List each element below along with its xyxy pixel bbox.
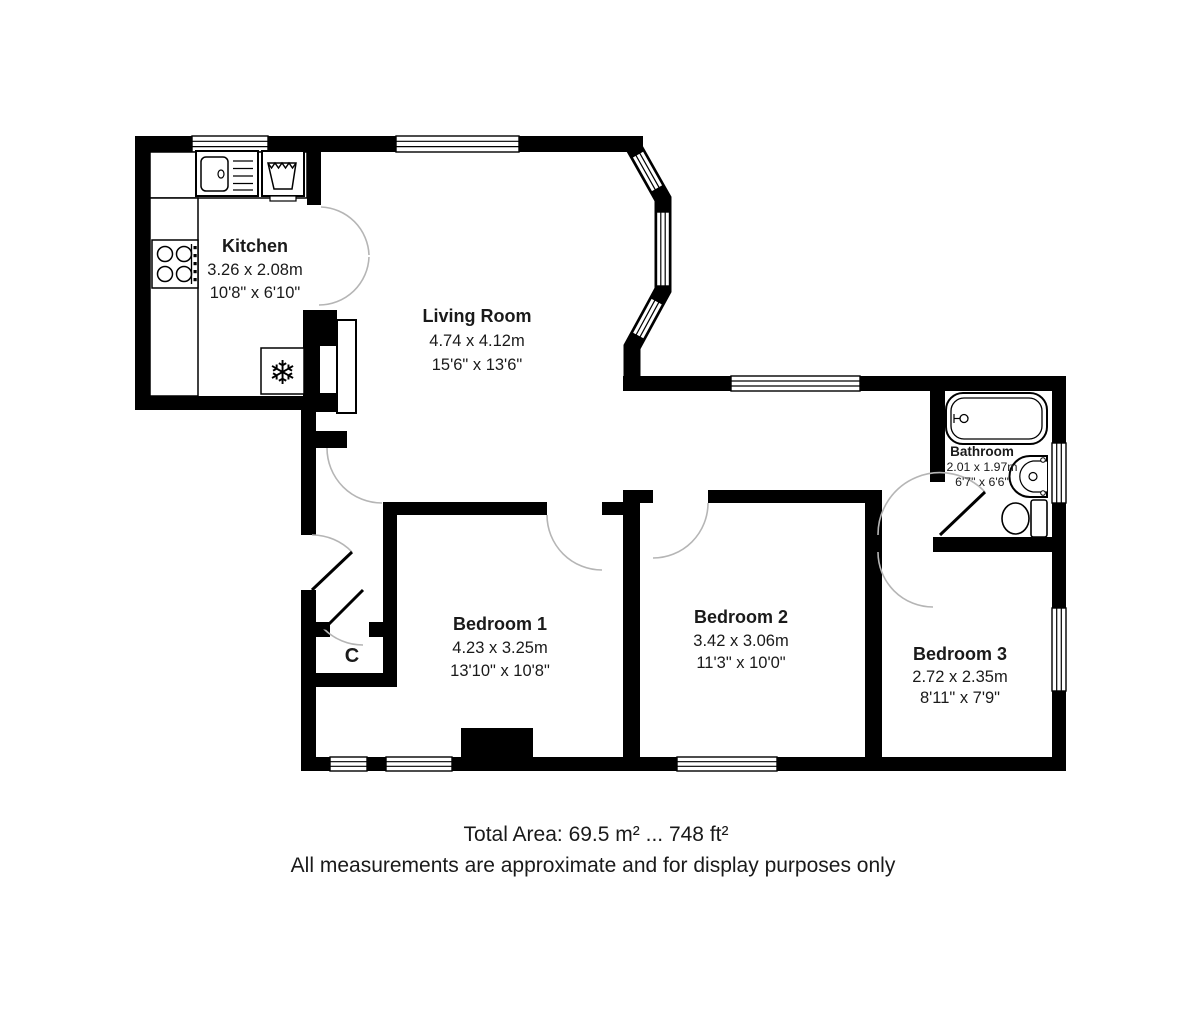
toilet-icon — [1002, 500, 1047, 537]
bedroom3-door-arc — [878, 552, 933, 607]
room-dims-imperial: 6'7" x 6'6" — [955, 475, 1009, 489]
room-name: Bedroom 1 — [453, 614, 547, 634]
closet-door-leaf — [324, 590, 363, 629]
room-bedroom-2: Bedroom 2 3.42 x 3.06m 11'3" x 10'0" — [693, 607, 788, 672]
bay-window-pane — [657, 212, 670, 286]
bedroom2-door-arc — [653, 503, 708, 558]
floorplan-drawing: ❄ Kitchen 3.26 x 2.08m 10'8" x 6'10" Li — [0, 0, 1200, 1020]
snowflake-icon: ❄ — [269, 353, 297, 392]
room-name: Bathroom — [950, 444, 1014, 459]
window — [396, 136, 519, 152]
bathtub-icon — [946, 393, 1047, 444]
room-kitchen: Kitchen 3.26 x 2.08m 10'8" x 6'10" — [207, 236, 302, 302]
window — [731, 376, 860, 391]
room-dims-imperial: 10'8" x 6'10" — [210, 284, 301, 302]
bathroom-door-leaf — [940, 492, 985, 535]
washing-machine-icon — [262, 151, 304, 201]
room-dims-metric: 4.74 x 4.12m — [429, 332, 524, 350]
bedroom1-door-arc — [547, 515, 602, 570]
room-dims-metric: 3.26 x 2.08m — [207, 261, 302, 279]
room-bedroom-3: Bedroom 3 2.72 x 2.35m 8'11" x 7'9" — [912, 644, 1007, 707]
window — [192, 136, 268, 152]
window — [386, 757, 452, 771]
room-dims-imperial: 8'11" x 7'9" — [920, 689, 1000, 707]
entrance-door-arc — [312, 535, 352, 552]
room-dims-imperial: 13'10" x 10'8" — [450, 662, 550, 680]
hob-icon — [152, 240, 198, 288]
kitchen-door-arc — [319, 257, 369, 305]
room-dims-metric: 2.01 x 1.97m — [946, 460, 1017, 474]
room-name: Bedroom 3 — [913, 644, 1007, 664]
footer: Total Area: 69.5 m² ... 748 ft² All meas… — [291, 823, 896, 877]
total-area-text: Total Area: 69.5 m² ... 748 ft² — [464, 823, 729, 846]
kitchen-counter — [150, 198, 198, 396]
room-closet: C — [345, 645, 359, 667]
room-living-room: Living Room 4.74 x 4.12m 15'6" x 13'6" — [423, 306, 532, 374]
floorplan-page: ❄ Kitchen 3.26 x 2.08m 10'8" x 6'10" Li — [0, 0, 1200, 1020]
bay-window-pane — [632, 298, 663, 339]
fireplace-hearth — [337, 320, 356, 413]
room-name: Kitchen — [222, 236, 288, 256]
room-dims-metric: 2.72 x 2.35m — [912, 668, 1007, 686]
room-name: Living Room — [423, 306, 532, 326]
room-bathroom: Bathroom 2.01 x 1.97m 6'7" x 6'6" — [946, 444, 1017, 489]
room-bedroom-1: Bedroom 1 4.23 x 3.25m 13'10" x 10'8" — [450, 614, 550, 680]
window — [330, 757, 367, 771]
disclaimer-text: All measurements are approximate and for… — [291, 854, 896, 877]
room-dims-imperial: 15'6" x 13'6" — [432, 356, 523, 374]
kitchen-door-arc — [321, 207, 369, 255]
room-dims-imperial: 11'3" x 10'0" — [696, 654, 785, 672]
window — [1052, 608, 1066, 691]
chimney-breast-bedroom1 — [461, 728, 533, 757]
window — [1052, 443, 1066, 503]
room-name: C — [345, 645, 359, 667]
entrance-door-leaf — [312, 552, 352, 590]
room-name: Bedroom 2 — [694, 607, 788, 627]
doors — [312, 207, 985, 645]
room-dims-metric: 3.42 x 3.06m — [693, 632, 788, 650]
fridge-icon: ❄ — [261, 348, 304, 394]
window — [677, 757, 777, 771]
hall-door-arc — [327, 448, 382, 503]
room-dims-metric: 4.23 x 3.25m — [452, 639, 547, 657]
bay-window-pane — [632, 151, 663, 192]
sink-icon — [196, 151, 258, 196]
